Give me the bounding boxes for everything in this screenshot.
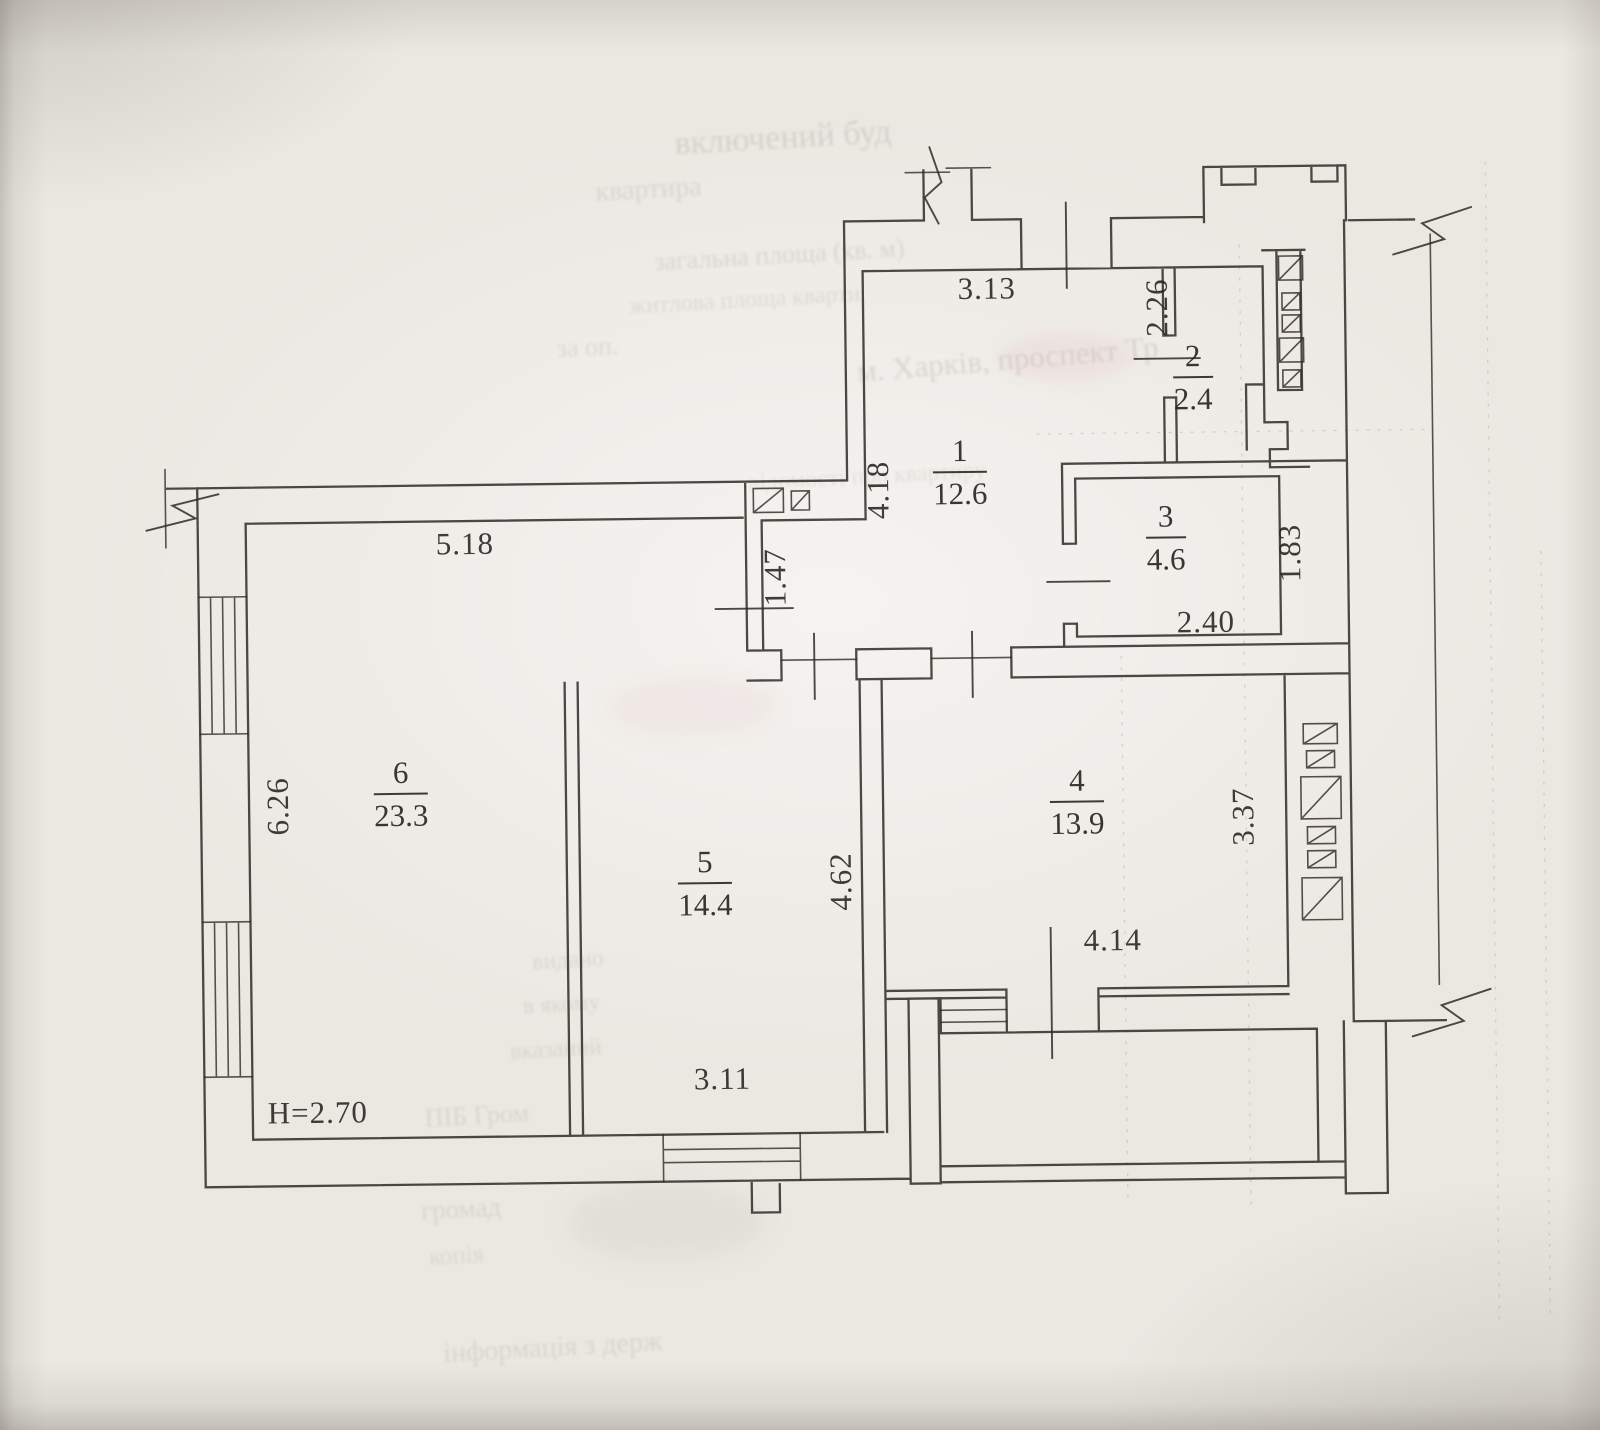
room-4-label: 4 13.9 <box>1050 764 1105 840</box>
room-3-area: 4.6 <box>1146 538 1186 577</box>
dim-alcove: 1.47 <box>757 548 794 607</box>
floorplan-sheet: включений буд квартира загальна площа (к… <box>0 0 1600 1430</box>
room-3-label: 3 4.6 <box>1146 500 1186 576</box>
room-6-label: 6 23.3 <box>373 757 428 833</box>
room-2-label: 2 2.4 <box>1173 340 1213 416</box>
dim-entry-top: 3.13 <box>957 270 1016 307</box>
scanned-page: включений буд квартира загальна площа (к… <box>0 0 1600 1430</box>
artifact-lines <box>1033 161 1550 1327</box>
room-1-label: 1 12.6 <box>932 435 987 511</box>
room-5-label: 5 14.4 <box>677 846 732 922</box>
dim-room6-left: 6.26 <box>260 777 297 836</box>
dim-room3-bottom: 2.40 <box>1177 604 1236 641</box>
room-2-area: 2.4 <box>1173 377 1213 416</box>
room-3-number: 3 <box>1146 500 1186 538</box>
room-1-number: 1 <box>932 435 987 473</box>
room-4-area: 13.9 <box>1050 802 1105 841</box>
room-1-area: 12.6 <box>933 472 988 511</box>
floorplan-drawing <box>0 0 1600 1430</box>
dim-room2-left: 2.26 <box>1139 278 1176 337</box>
dim-room6-top: 5.18 <box>436 526 495 563</box>
dim-room3-right: 1.83 <box>1272 524 1309 583</box>
dim-room5-right: 4.62 <box>823 852 860 911</box>
room-5-number: 5 <box>677 846 732 884</box>
break-symbols <box>141 140 1492 1052</box>
room-5-area: 14.4 <box>678 883 733 922</box>
dim-room5-bottom: 3.11 <box>694 1061 752 1098</box>
room-6-number: 6 <box>373 757 428 795</box>
room-4-number: 4 <box>1050 764 1105 802</box>
dim-room4-right: 3.37 <box>1225 787 1262 846</box>
dim-room4-bottom: 4.14 <box>1083 922 1142 959</box>
ceiling-height-label: H=2.70 <box>268 1094 369 1131</box>
dim-hall-left: 4.18 <box>860 461 897 520</box>
room-2-number: 2 <box>1173 340 1213 378</box>
walls <box>163 164 1448 1219</box>
room-6-area: 23.3 <box>374 794 429 833</box>
